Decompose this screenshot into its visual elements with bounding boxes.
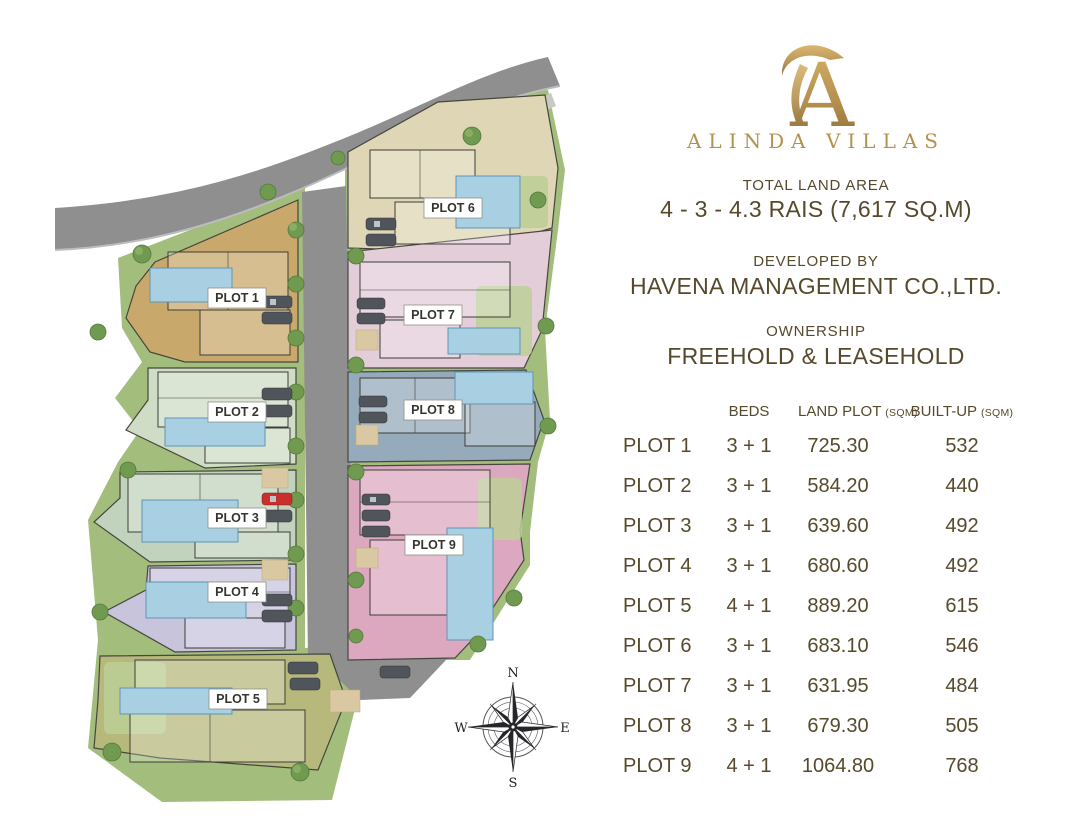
- table-row: PLOT 63 + 1683.10546: [620, 626, 1046, 666]
- central-road: [302, 186, 354, 660]
- compass-north-label: N: [507, 666, 518, 681]
- svg-text:PLOT 7: PLOT 7: [411, 308, 455, 322]
- site-plan: PLOT 1 PLOT 2 PLOT 3 PLOT 4 PLOT 5 PLOT …: [0, 0, 620, 840]
- compass-west-label: W: [454, 721, 468, 736]
- brand-name: ALINDA VILLAS: [600, 129, 1032, 153]
- plot-8-label: PLOT 8: [404, 400, 462, 420]
- plots-table: BEDS LAND PLOT (SQM) BUILT-UP (SQM) PLOT…: [620, 396, 1046, 786]
- plot-3-label: PLOT 3: [208, 508, 266, 528]
- table-row: PLOT 23 + 1584.20440: [620, 466, 1046, 506]
- svg-text:PLOT 8: PLOT 8: [411, 403, 455, 417]
- table-row: PLOT 83 + 1679.30505: [620, 706, 1046, 746]
- total-land-area-label: TOTAL LAND AREA: [600, 177, 1032, 194]
- plot-5-label: PLOT 5: [209, 689, 267, 709]
- svg-text:PLOT 4: PLOT 4: [215, 585, 259, 599]
- table-row: PLOT 43 + 1680.60492: [620, 546, 1046, 586]
- plot-6-label: PLOT 6: [424, 198, 482, 218]
- svg-text:PLOT 6: PLOT 6: [431, 201, 475, 215]
- table-row: PLOT 54 + 1889.20615: [620, 586, 1046, 626]
- plot-2-label: PLOT 2: [208, 402, 266, 422]
- info-panel: A ALINDA VILLAS TOTAL LAND AREA 4 - 3 - …: [600, 0, 1032, 840]
- table-row: PLOT 94 + 11064.80768: [620, 746, 1046, 786]
- developer-name: HAVENA MANAGEMENT CO.,LTD.: [600, 273, 1032, 300]
- svg-text:PLOT 3: PLOT 3: [215, 511, 259, 525]
- logo-monogram-graphic: A: [752, 42, 880, 128]
- logo-monogram-letter: A: [789, 44, 855, 128]
- plot-9-label: PLOT 9: [405, 535, 463, 555]
- header-beds: BEDS: [700, 403, 798, 420]
- plot-4-label: PLOT 4: [208, 582, 266, 602]
- plot-1-label: PLOT 1: [208, 288, 266, 308]
- table-row: PLOT 33 + 1639.60492: [620, 506, 1046, 546]
- total-land-area-value: 4 - 3 - 4.3 RAIS (7,617 SQ.M): [600, 196, 1032, 223]
- compass-east-label: E: [560, 721, 570, 736]
- table-row: PLOT 73 + 1631.95484: [620, 666, 1046, 706]
- header-land-plot: LAND PLOT (SQM): [798, 403, 878, 420]
- header-built-up: BUILT-UP (SQM): [878, 403, 1046, 420]
- svg-text:PLOT 5: PLOT 5: [216, 692, 260, 706]
- ownership-label: OWNERSHIP: [600, 323, 1032, 340]
- ownership-value: FREEHOLD & LEASEHOLD: [600, 343, 1032, 370]
- compass-rose: N E S W: [454, 666, 569, 791]
- plot-7-label: PLOT 7: [404, 305, 462, 325]
- svg-text:PLOT 9: PLOT 9: [412, 538, 456, 552]
- table-row: PLOT 13 + 1725.30532: [620, 426, 1046, 466]
- plots-table-header: BEDS LAND PLOT (SQM) BUILT-UP (SQM): [620, 396, 1046, 426]
- brand-logo: A: [752, 42, 880, 128]
- svg-text:PLOT 2: PLOT 2: [215, 405, 259, 419]
- compass-south-label: S: [509, 776, 518, 791]
- developed-by-label: DEVELOPED BY: [600, 253, 1032, 270]
- svg-text:PLOT 1: PLOT 1: [215, 291, 259, 305]
